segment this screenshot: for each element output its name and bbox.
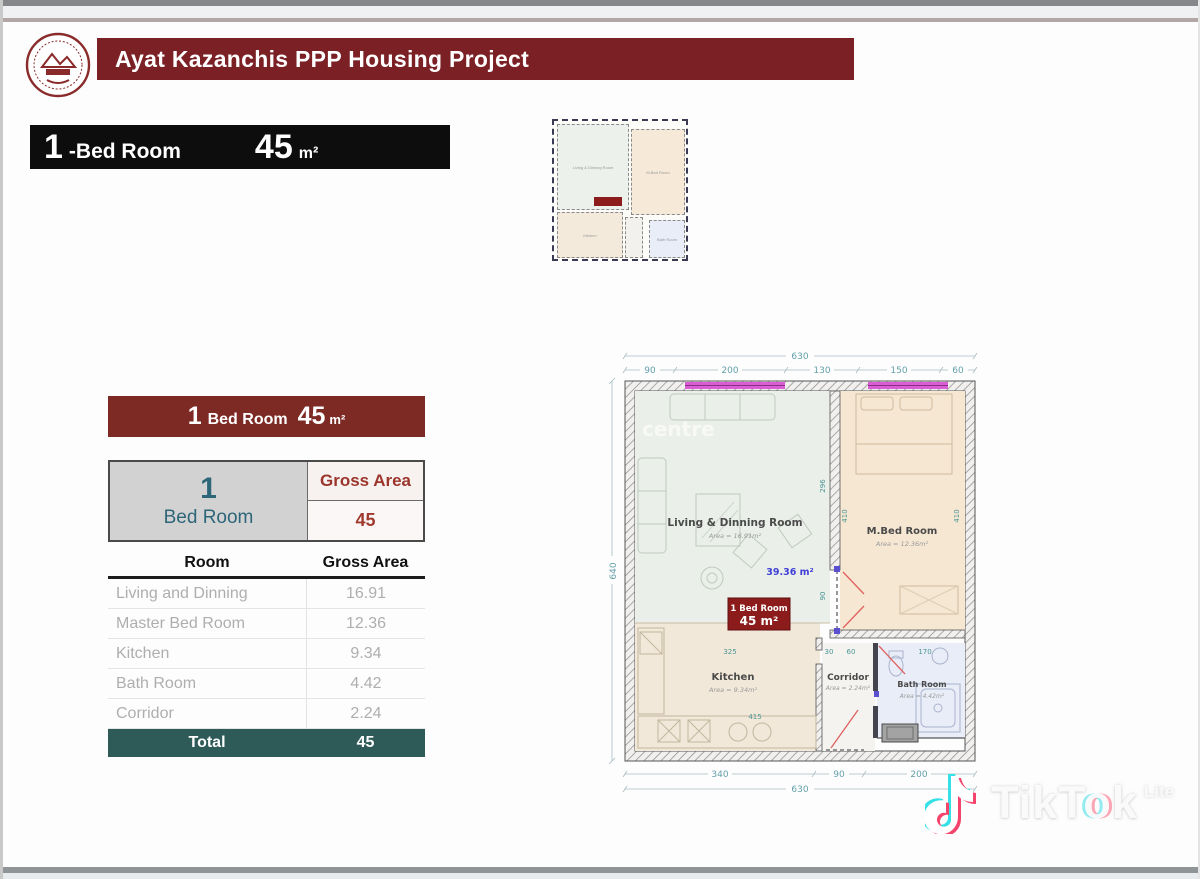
svg-text:90: 90 bbox=[819, 592, 827, 601]
svg-text:325: 325 bbox=[723, 648, 736, 656]
thumb-bathroom: Bath Room bbox=[649, 220, 685, 258]
table-row: Kitchen 9.34 bbox=[108, 639, 425, 669]
unit-cell: 1 Bed Room bbox=[110, 462, 308, 540]
table-row: Living and Dinning 16.91 bbox=[108, 579, 425, 609]
area-summary-table: 1 Bed Room 45 m² 1 Bed Room Gross Area 4… bbox=[108, 396, 425, 759]
frame-top-line bbox=[0, 18, 1200, 22]
table-row: Master Bed Room 12.36 bbox=[108, 609, 425, 639]
thumb-master-bedroom: M.Bed Room bbox=[631, 129, 685, 215]
frame-bottom-gap bbox=[0, 873, 1200, 879]
thumb-unit-badge bbox=[594, 197, 622, 206]
svg-text:30: 30 bbox=[825, 648, 834, 656]
svg-text:90: 90 bbox=[833, 770, 845, 780]
table-total-row: Total 45 bbox=[108, 729, 425, 757]
svg-text:340: 340 bbox=[711, 770, 728, 780]
svg-text:45 m²: 45 m² bbox=[740, 614, 779, 628]
table-unit-area-unit: m² bbox=[329, 412, 345, 427]
total-label: Total bbox=[108, 729, 306, 757]
table-header-row: Room Gross Area bbox=[108, 549, 425, 579]
thumb-corridor bbox=[625, 217, 643, 258]
svg-text:130: 130 bbox=[813, 366, 830, 376]
svg-text:1 Bed Room: 1 Bed Room bbox=[730, 604, 787, 614]
frame-top-gap bbox=[0, 6, 1200, 18]
svg-text:200: 200 bbox=[721, 366, 738, 376]
gross-area-label: Gross Area bbox=[308, 462, 423, 501]
unit-badge: 1 Bed Room 45 m² bbox=[728, 598, 790, 630]
unit-cell-label: Bed Room bbox=[164, 507, 254, 529]
corridor-label: Corridor bbox=[827, 673, 869, 683]
kitchen-label: Kitchen bbox=[712, 672, 755, 683]
unit-number: 1 bbox=[44, 125, 63, 169]
slide: Ayat Kazanchis PPP Housing Project 1 -Be… bbox=[0, 0, 1200, 879]
tiktok-note-icon bbox=[925, 772, 981, 834]
svg-text:Area = 9.34m²: Area = 9.34m² bbox=[708, 686, 757, 694]
gross-area-value: 45 bbox=[308, 501, 423, 540]
project-title: Ayat Kazanchis PPP Housing Project bbox=[115, 46, 529, 73]
dim-top-total: 630 bbox=[791, 352, 808, 362]
svg-text:60: 60 bbox=[952, 366, 964, 376]
master-bedroom-area bbox=[840, 391, 965, 635]
svg-text:Area = 12.36m²: Area = 12.36m² bbox=[875, 540, 929, 548]
company-seal-icon bbox=[24, 31, 92, 99]
frame-left-edge bbox=[0, 0, 3, 879]
unit-cell-number: 1 bbox=[200, 474, 217, 504]
total-value: 45 bbox=[306, 729, 425, 757]
tiktok-wordmark: TikTok bbox=[991, 777, 1138, 829]
bathroom-label: Bath Room bbox=[897, 680, 946, 689]
floorplan-thumbnail: Living & Dinning Room M.Bed Room Kitchen… bbox=[552, 119, 688, 261]
dim-bottom-segments: 340 90 200 630 bbox=[708, 768, 931, 795]
tiktok-lite-label: Lite bbox=[1144, 782, 1174, 802]
table-unit-area: 45 bbox=[298, 402, 326, 431]
svg-text:170: 170 bbox=[918, 648, 931, 656]
table-unit-label: Bed Room bbox=[208, 411, 288, 429]
project-title-banner: Ayat Kazanchis PPP Housing Project bbox=[97, 38, 854, 80]
dim-left: 640 bbox=[609, 562, 619, 579]
svg-text:60: 60 bbox=[847, 648, 856, 656]
svg-text:Area = 16.91m²: Area = 16.91m² bbox=[708, 532, 762, 540]
table-unit-number: 1 bbox=[188, 396, 202, 437]
column-room: Room bbox=[108, 549, 306, 576]
thumb-kitchen: Kitchen bbox=[557, 212, 623, 258]
unit-label: -Bed Room bbox=[69, 140, 181, 164]
living-room-label: Living & Dinning Room bbox=[667, 517, 802, 529]
table-title-banner: 1 Bed Room 45 m² bbox=[108, 396, 425, 437]
tiktok-watermark: TikTok Lite bbox=[925, 768, 1185, 838]
total-area-annotation: 39.36 m² bbox=[766, 567, 813, 578]
svg-text:Area = 2.24m²: Area = 2.24m² bbox=[825, 685, 871, 692]
video-watermark-text: centre bbox=[642, 417, 715, 441]
svg-text:296: 296 bbox=[819, 479, 827, 493]
svg-text:150: 150 bbox=[890, 366, 907, 376]
svg-text:Area = 4.42m²: Area = 4.42m² bbox=[899, 693, 945, 700]
dim-bottom-total: 630 bbox=[791, 785, 808, 795]
svg-text:90: 90 bbox=[644, 366, 656, 376]
svg-text:415: 415 bbox=[748, 713, 761, 721]
column-gross-area: Gross Area bbox=[306, 549, 425, 576]
unit-area: 45 bbox=[255, 128, 293, 167]
unit-area-unit: m² bbox=[299, 145, 319, 163]
floorplan-drawing: 630 90 200 130 150 60 640 340 90 200 630 bbox=[600, 346, 1005, 802]
table-row: Corridor 2.24 bbox=[108, 699, 425, 729]
table-row: Bath Room 4.42 bbox=[108, 669, 425, 699]
unit-title-banner: 1 -Bed Room 45 m² bbox=[30, 125, 450, 169]
master-bedroom-label: M.Bed Room bbox=[867, 526, 938, 537]
corridor-area bbox=[822, 643, 875, 751]
svg-text:410: 410 bbox=[841, 509, 849, 522]
svg-text:410: 410 bbox=[953, 509, 961, 522]
unit-gross-area-box: 1 Bed Room Gross Area 45 bbox=[108, 460, 425, 542]
